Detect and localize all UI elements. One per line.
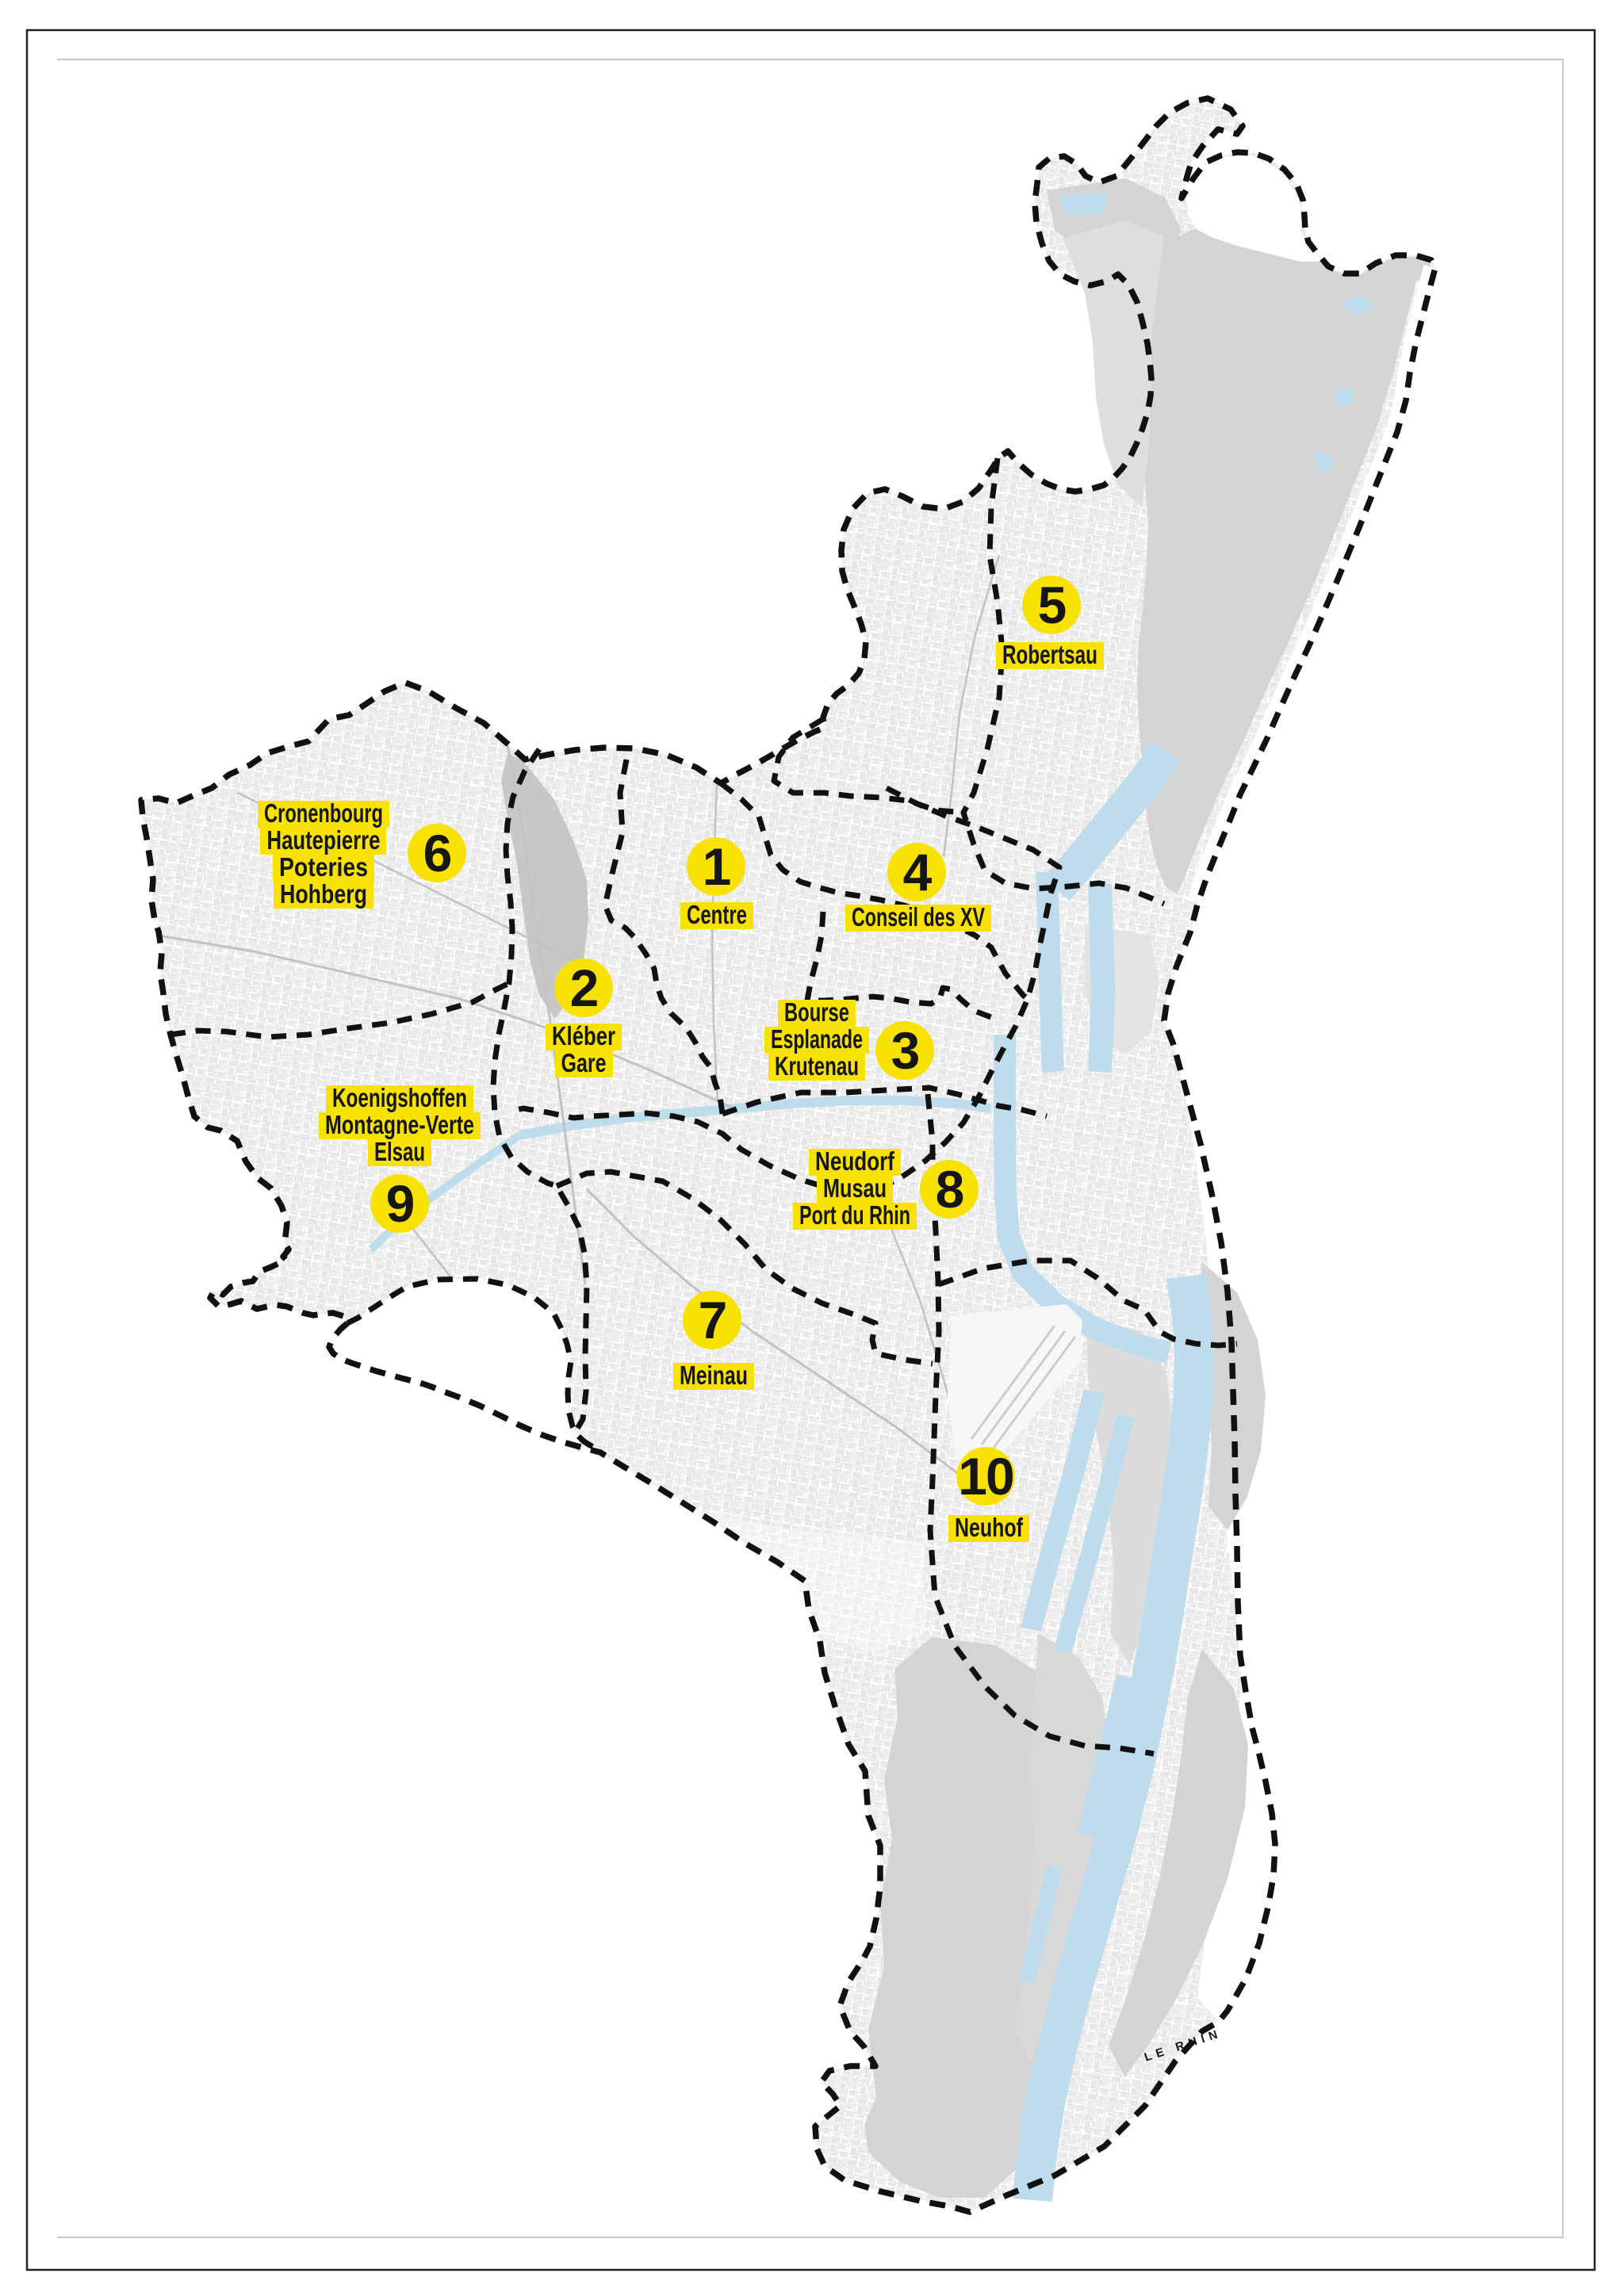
svg-text:Poteries: Poteries [279,852,368,882]
svg-text:7: 7 [699,1291,726,1349]
svg-text:3: 3 [891,1021,919,1080]
svg-text:Bourse: Bourse [784,997,849,1027]
svg-text:Hautepierre: Hautepierre [267,825,381,855]
svg-text:Kléber: Kléber [552,1021,615,1050]
svg-text:Koenigshoffen: Koenigshoffen [332,1083,467,1112]
svg-text:9: 9 [386,1174,414,1233]
svg-text:2: 2 [570,959,598,1017]
svg-text:Neudorf: Neudorf [815,1146,895,1176]
svg-text:6: 6 [423,824,451,882]
svg-text:1: 1 [703,837,730,896]
svg-text:Musau: Musau [823,1173,887,1203]
svg-text:Elsau: Elsau [374,1137,425,1166]
svg-text:Conseil des XV: Conseil des XV [852,902,985,932]
svg-text:Port du Rhin: Port du Rhin [799,1200,910,1230]
svg-text:Centre: Centre [687,900,747,929]
svg-text:10: 10 [958,1447,1013,1506]
svg-text:Neuhof: Neuhof [955,1513,1024,1542]
svg-text:Hohberg: Hohberg [280,879,367,909]
svg-text:Robertsau: Robertsau [1002,640,1097,669]
svg-text:Meinau: Meinau [680,1360,748,1390]
svg-text:Cronenbourg: Cronenbourg [264,798,383,828]
svg-text:Esplanade: Esplanade [771,1024,863,1054]
svg-text:4: 4 [903,843,933,901]
svg-text:Krutenau: Krutenau [775,1051,859,1081]
svg-text:8: 8 [936,1160,963,1219]
svg-text:5: 5 [1038,576,1066,634]
svg-text:Gare: Gare [561,1048,607,1077]
svg-text:Montagne-Verte: Montagne-Verte [325,1110,474,1139]
